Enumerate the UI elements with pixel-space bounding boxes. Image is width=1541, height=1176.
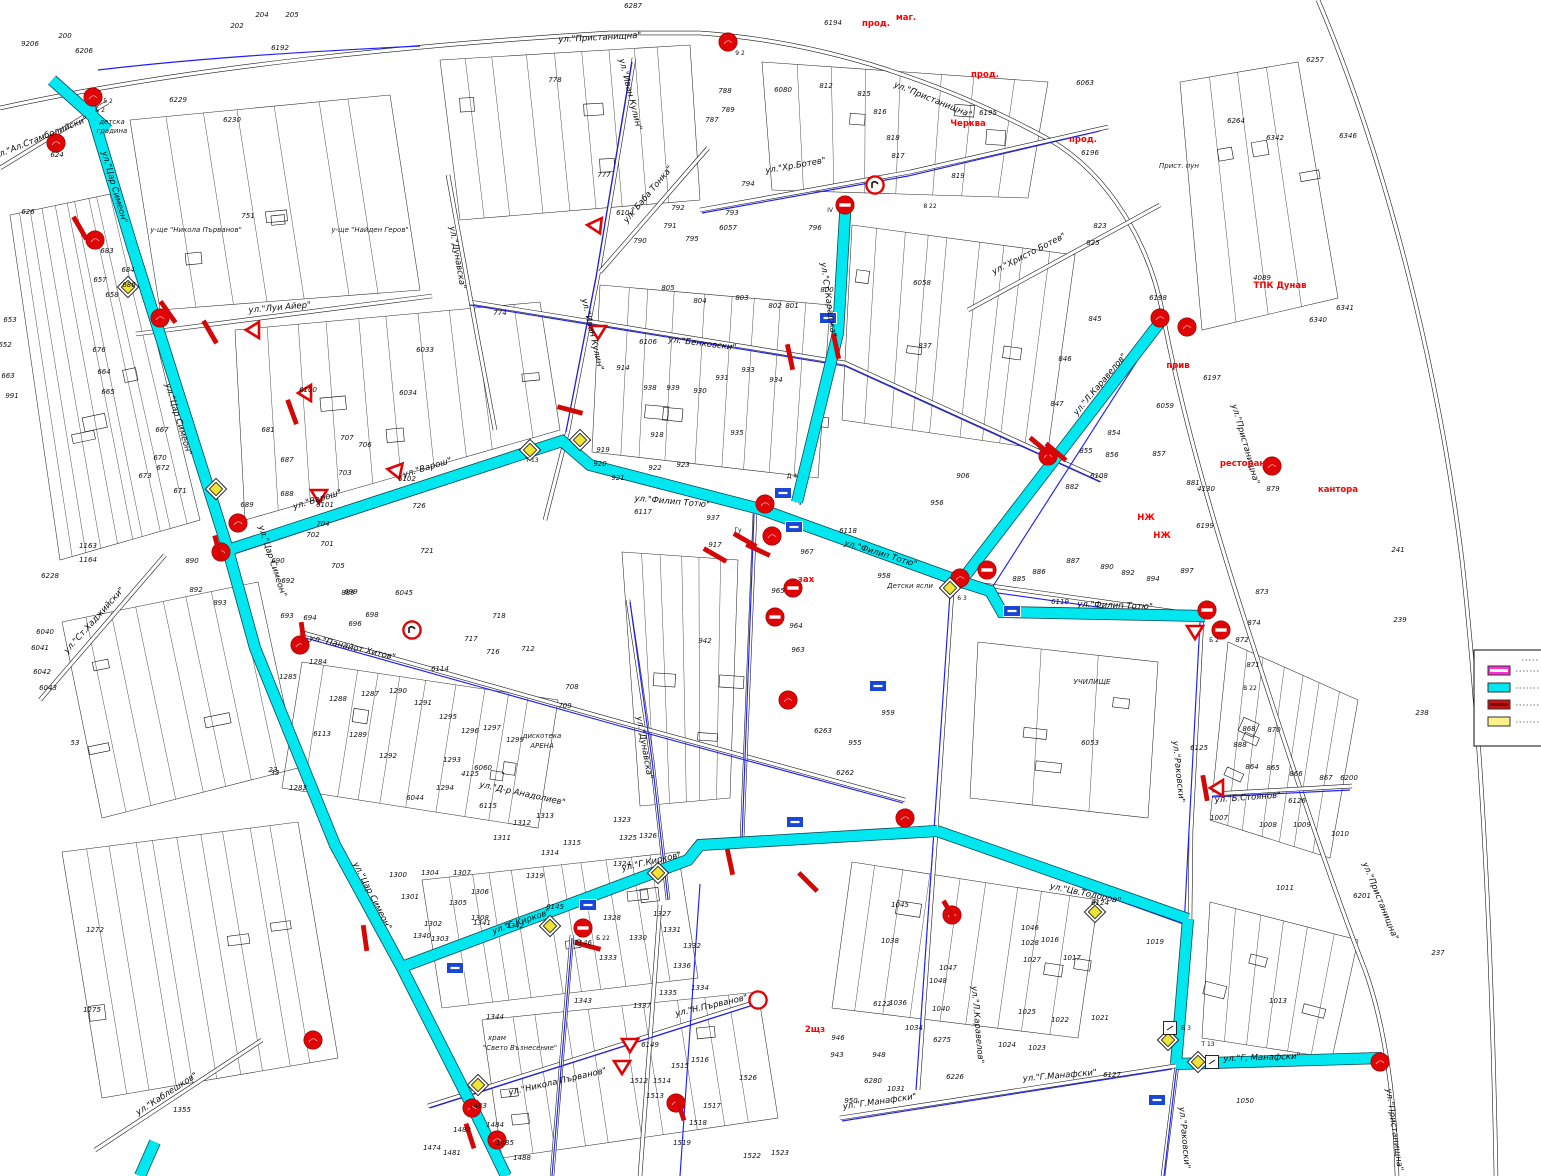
parcel-number-label: 931 — [715, 374, 728, 382]
sign-post-marker-icon — [779, 691, 797, 709]
parcel-number-label: 200 — [58, 32, 72, 40]
parcel-boundary-line — [1288, 927, 1308, 1051]
highlighted-route — [1176, 919, 1188, 1064]
parcel-number-label: 6119 — [1051, 598, 1069, 606]
parcel-number-label: 6226 — [946, 1073, 964, 1081]
parcel-number-label: 1323 — [613, 816, 631, 824]
parcel-number-label: 893 — [213, 599, 226, 607]
sign-post-marker-icon — [84, 88, 102, 106]
parcel-number-label: 1482 — [453, 1126, 471, 1134]
parcel-number-label: 1313 — [536, 812, 554, 820]
building-outline — [986, 129, 1006, 145]
parcel-number-label: 790 — [633, 237, 647, 245]
parcel-number-label: 1355 — [173, 1106, 191, 1114]
parcel-number-label: 958 — [877, 572, 891, 580]
parcel-number-label: 1300 — [389, 871, 407, 879]
parcel-number-label: 873 — [1255, 588, 1268, 596]
street-name-label: ул."Пристанищна" — [1228, 402, 1261, 486]
parcel-number-label: 914 — [616, 364, 629, 372]
building-outline — [1251, 140, 1269, 157]
info-sign-glyph — [451, 967, 460, 969]
street-surface — [918, 832, 936, 1090]
city-block-outline — [592, 285, 830, 478]
sign-code-label: Д 4 — [787, 473, 798, 480]
poi-name-label: градина — [97, 127, 128, 135]
parcel-number-label: 889 — [341, 589, 355, 597]
parcel-number-label: 6114 — [431, 665, 449, 673]
parcel-number-label: 6280 — [864, 1077, 882, 1085]
parcel-number-label: 1024 — [998, 1041, 1016, 1049]
parcel-boundary-line — [695, 294, 705, 464]
parcel-boundary-line — [348, 99, 378, 293]
parcel-number-label: 1523 — [771, 1149, 789, 1157]
parcel-number-label: 1303 — [431, 935, 449, 943]
building-outline — [511, 1113, 529, 1125]
city-map-canvas[interactable]: 2002042052029206620662296230624626751619… — [0, 0, 1541, 1176]
parcel-number-label: 817 — [891, 152, 905, 160]
parcel-number-label: 663 — [1, 372, 14, 380]
parcel-number-label: 933 — [741, 366, 754, 374]
parcel-number-label: 1293 — [443, 756, 461, 764]
sign-code-label: 9 2 — [735, 50, 745, 57]
no-entry-bar — [769, 615, 780, 618]
sign-code-label: Т 13 — [1200, 1041, 1214, 1048]
parcel-number-label: 1290 — [389, 687, 407, 695]
parcel-number-label: 1522 — [743, 1152, 761, 1160]
parcel-number-label: 6057 — [719, 224, 737, 232]
parcel-number-label: 1326 — [639, 832, 657, 840]
parcel-number-label: 890 — [1100, 563, 1114, 571]
parcel-boundary-line — [508, 696, 528, 824]
parcel-number-label: 1009 — [1293, 821, 1311, 829]
no-entry-bar — [981, 568, 992, 571]
parcel-number-label: 1011 — [1276, 884, 1294, 892]
parcel-number-label: 6275 — [933, 1036, 951, 1044]
sign-pole-bar — [71, 216, 88, 241]
parcel-number-label: 9206 — [21, 40, 39, 48]
poi-red-label: маг. — [896, 13, 916, 23]
highlighted-route — [140, 1142, 155, 1176]
parcel-number-label: 1343 — [574, 997, 592, 1005]
poi-red-label: ТПК Дунав — [1254, 281, 1307, 291]
parcel-number-label: 1038 — [881, 937, 899, 945]
parcel-number-label: 1514 — [653, 1077, 671, 1085]
sign-code-label: Гу — [734, 527, 742, 534]
parcel-number-label: 6118 — [839, 527, 857, 535]
street-surface — [840, 1058, 1388, 1118]
parcel-number-label: 801 — [785, 302, 798, 310]
poi-name-label: Прист. пун — [1159, 162, 1199, 170]
parcel-number-label: 1304 — [421, 869, 439, 877]
parcel-boundary-line — [20, 213, 73, 557]
parcel-number-label: 1284 — [309, 658, 327, 666]
parcel-number-label: 6287 — [624, 2, 642, 10]
parcel-boundary-line — [274, 106, 304, 299]
parcel-number-label: 6059 — [1156, 402, 1174, 410]
building-outline — [490, 770, 504, 780]
info-sign-glyph — [1153, 1099, 1162, 1101]
parcel-number-label: 6194 — [824, 19, 842, 27]
parcel-number-label: 1311 — [493, 834, 511, 842]
parcel-number-label: 6042 — [33, 668, 51, 676]
parcel-boundary-line — [436, 685, 456, 812]
parcel-number-label: 777 — [597, 171, 611, 179]
parcel-number-label: 937 — [706, 514, 720, 522]
parcel-boundary-line — [1000, 248, 1023, 443]
parcel-number-label: 6040 — [36, 628, 54, 636]
parcel-boundary-line — [526, 55, 543, 213]
parcel-number-label: 897 — [1180, 567, 1194, 575]
building-outline — [850, 113, 866, 125]
parcel-boundary-line — [660, 555, 669, 804]
building-outline — [1217, 147, 1233, 161]
building-outline — [227, 934, 249, 946]
parcel-number-label: 856 — [1105, 451, 1119, 459]
parcel-number-label: 626 — [21, 208, 35, 216]
poi-red-label: прив — [1166, 361, 1189, 371]
parcel-number-label: 872 — [1235, 636, 1249, 644]
sign-pole-bar — [797, 871, 819, 893]
parcel-number-label: 204 — [255, 11, 268, 19]
building-outline — [1044, 963, 1064, 977]
parcel-boundary-line — [1262, 667, 1284, 836]
street-casing — [470, 302, 1102, 480]
parcel-number-label: 712 — [521, 645, 535, 653]
poi-name-label: УЧИЛИЩЕ — [1074, 678, 1111, 686]
parcel-boundary-line — [166, 117, 196, 308]
parcel-boundary-line — [30, 211, 86, 553]
parcel-number-label: 964 — [789, 622, 802, 630]
street-name-label: ул."Пристанищна" — [557, 31, 641, 45]
info-sign-glyph — [791, 821, 800, 823]
parcel-number-label: 684 — [121, 266, 134, 274]
legend-swatch — [1488, 717, 1510, 726]
parcel-number-label: 6195 — [979, 109, 997, 117]
parcel-number-label: 794 — [741, 180, 754, 188]
parcel-number-label: 1516 — [691, 1056, 709, 1064]
street-name-label: ул."Иван Кулин" — [616, 57, 644, 132]
parcel-number-label: 1332 — [683, 942, 701, 950]
parcel-number-label: 1010 — [1331, 830, 1349, 838]
parcel-number-label: 6106 — [639, 338, 657, 346]
parcel-number-label: 917 — [708, 541, 722, 549]
poi-name-label: детска — [98, 118, 125, 126]
parcel-number-label: 938 — [643, 384, 657, 392]
parcel-number-label: 6149 — [641, 1041, 659, 1049]
parcel-boundary-line — [940, 879, 960, 1021]
info-sign-glyph — [779, 492, 788, 494]
sign-post-marker-icon — [1151, 309, 1169, 327]
parcel-number-label: 1512 — [630, 1077, 648, 1085]
parcel-number-label: 906 — [956, 472, 970, 480]
street-surface — [448, 175, 495, 430]
parcel-number-label: 1335 — [659, 989, 677, 997]
parcel-number-label: 1340 — [413, 932, 431, 940]
city-block-outline — [62, 822, 338, 1098]
parcel-number-label: 6197 — [1203, 374, 1221, 382]
street-surface — [936, 592, 952, 830]
parcel-number-label: 818 — [886, 134, 900, 142]
sign-code-label: 8 22 — [923, 203, 937, 210]
sign-code-label: 5 2 — [103, 98, 113, 105]
parcel-boundary-line — [319, 102, 349, 296]
parcel-number-label: 702 — [306, 531, 320, 539]
parcel-number-label: 847 — [1050, 400, 1064, 408]
poi-red-label: НЖ — [1137, 513, 1155, 523]
parcel-number-label: 6200 — [1340, 774, 1358, 782]
parcel-number-label: 792 — [671, 204, 685, 212]
parcel-number-label: 959 — [881, 709, 895, 717]
parcel-number-label: 868 — [1242, 725, 1256, 733]
parcel-number-label: 930 — [693, 387, 707, 395]
parcel-boundary-line — [222, 832, 262, 1071]
parcel-number-label: 1050 — [1236, 1097, 1254, 1105]
parcel-number-label: 888 — [1233, 741, 1247, 749]
parcel-number-label: 967 — [800, 548, 814, 556]
parcel-boundary-line — [326, 322, 339, 493]
parcel-number-label: 6199 — [1196, 522, 1214, 530]
street-surface — [0, 33, 700, 108]
parcel-number-label: 688 — [280, 490, 294, 498]
parcel-number-label: 716 — [486, 648, 500, 656]
parcel-number-label: 1334 — [691, 984, 709, 992]
legend-swatch-stripe — [1490, 703, 1508, 706]
yield-sign-icon — [614, 1061, 630, 1074]
parcel-number-label: 6080 — [774, 86, 792, 94]
parcel-number-label: 6346 — [1339, 132, 1357, 140]
building-outline — [1112, 697, 1129, 708]
map-viewport: 2002042052029206620662296230624626751619… — [0, 0, 1541, 1176]
poi-red-label: НЖ — [1153, 531, 1171, 541]
parcel-number-label: 6229 — [169, 96, 187, 104]
parcel-number-label: 6262 — [836, 769, 854, 777]
parcel-number-label: 6196 — [1081, 149, 1099, 157]
parcel-number-label: 6263 — [814, 727, 832, 735]
street-name-label: ул."Ал.Стамболийски" — [0, 115, 89, 162]
sign-post-marker-icon — [756, 495, 774, 513]
parcel-boundary-line — [717, 559, 721, 799]
parcel-number-label: 991 — [5, 392, 18, 400]
parcel-number-label: 919 — [596, 446, 610, 454]
parcel-number-label: 892 — [189, 586, 203, 594]
parcel-number-label: 6192 — [271, 44, 289, 52]
building-outline — [271, 215, 285, 226]
street-casing — [700, 33, 1397, 1176]
parcel-number-label: 6043 — [39, 684, 57, 692]
parcel-number-label: 1488 — [513, 1154, 531, 1162]
building-outline — [123, 368, 138, 383]
street-casing — [0, 33, 700, 108]
parcel-number-label: 696 — [348, 620, 362, 628]
parcel-number-label: 1291 — [414, 699, 432, 707]
parcel-number-label: 823 — [1093, 222, 1106, 230]
parcel-boundary-line — [744, 298, 755, 469]
parcel-number-label: 1025 — [1018, 1008, 1036, 1016]
parcel-number-label: 791 — [663, 222, 676, 230]
no-turn-sign-icon — [403, 621, 420, 638]
parcel-number-label: 1163 — [79, 542, 97, 550]
parcel-number-label: 942 — [698, 637, 712, 645]
parcel-number-label: 6198 — [1149, 294, 1167, 302]
parcel-number-label: 202 — [230, 22, 244, 30]
parcel-number-label: 845 — [1088, 315, 1102, 323]
building-outline — [1002, 346, 1021, 360]
poi-name-label: храм — [487, 1034, 507, 1042]
parcel-number-label: 6060 — [474, 764, 492, 772]
parcel-number-label: 721 — [420, 547, 433, 555]
parcel-number-label: 803 — [735, 294, 748, 302]
sign-pole-bar — [725, 849, 735, 875]
parcel-number-label: 6264 — [1227, 117, 1245, 125]
parcel-number-label: 793 — [725, 209, 738, 217]
parcel-number-label: 1319 — [526, 872, 544, 880]
parcel-number-label: 1275 — [83, 1006, 101, 1014]
highlighted-route-layer — [52, 80, 1382, 1176]
parcel-number-label: 673 — [138, 472, 151, 480]
parcel-number-label: 1016 — [1041, 936, 1059, 944]
parcel-boundary-line — [152, 841, 192, 1083]
parcel-number-label: 6146 — [574, 939, 592, 947]
parcel-number-label: 1513 — [646, 1092, 664, 1100]
parcel-boundary-line — [465, 58, 484, 217]
parcel-number-label: 718 — [492, 612, 506, 620]
parcel-boundary-line — [186, 597, 226, 787]
parcel-number-label: 921 — [611, 474, 624, 482]
city-block-outline — [235, 302, 560, 520]
building-outline — [352, 708, 369, 723]
parcel-number-label: 948 — [872, 1051, 886, 1059]
parcel-number-label: 846 — [1058, 355, 1072, 363]
no-turn-sign-icon — [866, 176, 883, 193]
poi-red-label: прод. — [862, 19, 890, 29]
street-name-label: ул."Пристанищна" — [1383, 1087, 1405, 1172]
parcel-number-label: 689 — [240, 501, 254, 509]
parcel-number-label: 6034 — [399, 389, 417, 397]
parcel-boundary-line — [86, 617, 126, 812]
parcel-boundary-line — [699, 557, 700, 800]
parcel-number-label: 1013 — [1269, 997, 1287, 1005]
parcel-number-label: 6053 — [1081, 739, 1099, 747]
parcel-boundary-line — [1224, 909, 1235, 1042]
parcel-boundary-line — [891, 232, 905, 427]
parcel-number-label: 694 — [303, 614, 316, 622]
parcel-boundary-line — [998, 80, 1014, 197]
parcel-number-label: 665 — [101, 388, 115, 396]
parcel-number-label: 815 — [857, 90, 871, 98]
poi-red-label: Черква — [950, 119, 986, 129]
parcel-number-label: 1314 — [541, 849, 559, 857]
parcel-number-label: 787 — [705, 116, 719, 124]
parcel-number-label: 887 — [1066, 557, 1080, 565]
parcel-number-label: 1325 — [619, 834, 637, 842]
parcel-number-label: 922 — [648, 464, 662, 472]
poi-name-label: Детски ясли — [886, 582, 933, 590]
parcel-number-label: 789 — [721, 106, 735, 114]
parcel-number-label: 812 — [819, 82, 833, 90]
parcel-number-label: 825 — [1086, 239, 1100, 247]
no-entry-bar — [787, 586, 798, 589]
parcel-number-label: 774 — [493, 309, 506, 317]
parcel-number-label: 658 — [105, 291, 119, 299]
parcel-number-label: 1021 — [1091, 1014, 1109, 1022]
parcel-boundary-line — [1247, 915, 1261, 1045]
parcel-number-label: 6113 — [313, 730, 331, 738]
parcel-boundary-line — [465, 689, 485, 816]
parcel-boundary-line — [1267, 921, 1284, 1048]
no-entry-bar — [1201, 608, 1212, 611]
sign-code-label: 6 3 — [957, 595, 967, 602]
building-outline — [71, 430, 95, 443]
parcel-boundary-line — [203, 113, 233, 304]
parcel-boundary-line — [136, 607, 176, 799]
city-block-outline — [762, 62, 1048, 198]
parcel-boundary-line — [163, 601, 203, 792]
parcel-number-label: 6063 — [1076, 79, 1094, 87]
street-surface — [700, 33, 1397, 1176]
parcel-number-label: 892 — [1121, 569, 1135, 577]
parcel-number-label: 241 — [1391, 546, 1404, 554]
parcel-number-label: 709 — [558, 702, 572, 710]
no-entry-bar — [839, 203, 850, 206]
parcel-boundary-line — [109, 846, 149, 1090]
parcel-number-label: 686 — [122, 281, 136, 289]
parcel-number-label: 963 — [791, 646, 804, 654]
yield-sign-icon — [246, 322, 259, 338]
parcel-number-label: 707 — [340, 434, 354, 442]
building-outline — [1023, 727, 1047, 739]
parcel-number-label: 6033 — [416, 346, 434, 354]
parcel-number-label: 864 — [1245, 763, 1258, 771]
parcel-number-label: 681 — [261, 426, 274, 434]
parcel-number-label: 923 — [676, 461, 689, 469]
parcel-number-label: 657 — [93, 276, 107, 284]
highlighted-route — [937, 831, 1188, 919]
parcel-number-label: 239 — [1393, 616, 1407, 624]
parcel-number-label: 1028 — [1021, 939, 1039, 947]
parcel-number-label: 865 — [1266, 764, 1280, 772]
parcel-number-label: 1022 — [1051, 1016, 1069, 1024]
parcel-number-label: 1034 — [905, 1024, 923, 1032]
parcel-number-label: 1048 — [929, 977, 947, 985]
parcel-number-label: 1288 — [329, 695, 347, 703]
parcel-number-label: 1315 — [563, 839, 581, 847]
sign-code-label: ІV — [827, 207, 834, 214]
poi-name-label: "Свето Възнесение" — [483, 1044, 557, 1052]
building-outline — [1203, 981, 1227, 999]
parcel-number-label: 706 — [358, 441, 372, 449]
city-block-outline — [970, 642, 1158, 818]
parcel-number-label: 6044 — [406, 794, 424, 802]
parcel-number-label: 6117 — [634, 508, 652, 516]
parcel-number-label: 1336 — [673, 962, 691, 970]
parcel-number-label: 796 — [808, 224, 822, 232]
parcel-number-label: 671 — [173, 487, 186, 495]
parcel-boundary-line — [418, 313, 434, 466]
parcel-boundary-line — [1210, 77, 1237, 322]
parcel-number-label: 1333 — [599, 954, 617, 962]
parcel-boundary-line — [237, 110, 267, 302]
no-entry-bar — [1215, 628, 1226, 631]
sign-code-label: Т 13 — [524, 457, 538, 464]
building-outline — [627, 890, 648, 902]
city-block-outline — [440, 45, 700, 220]
parcel-number-label: 1312 — [513, 819, 531, 827]
parcel-boundary-line — [1266, 67, 1301, 306]
parcel-number-label: 854 — [1107, 429, 1120, 437]
parcel-number-label: 879 — [1266, 485, 1280, 493]
parcel-number-label: 1337 — [633, 1002, 651, 1010]
parcel-number-label: 6100 — [299, 386, 317, 394]
